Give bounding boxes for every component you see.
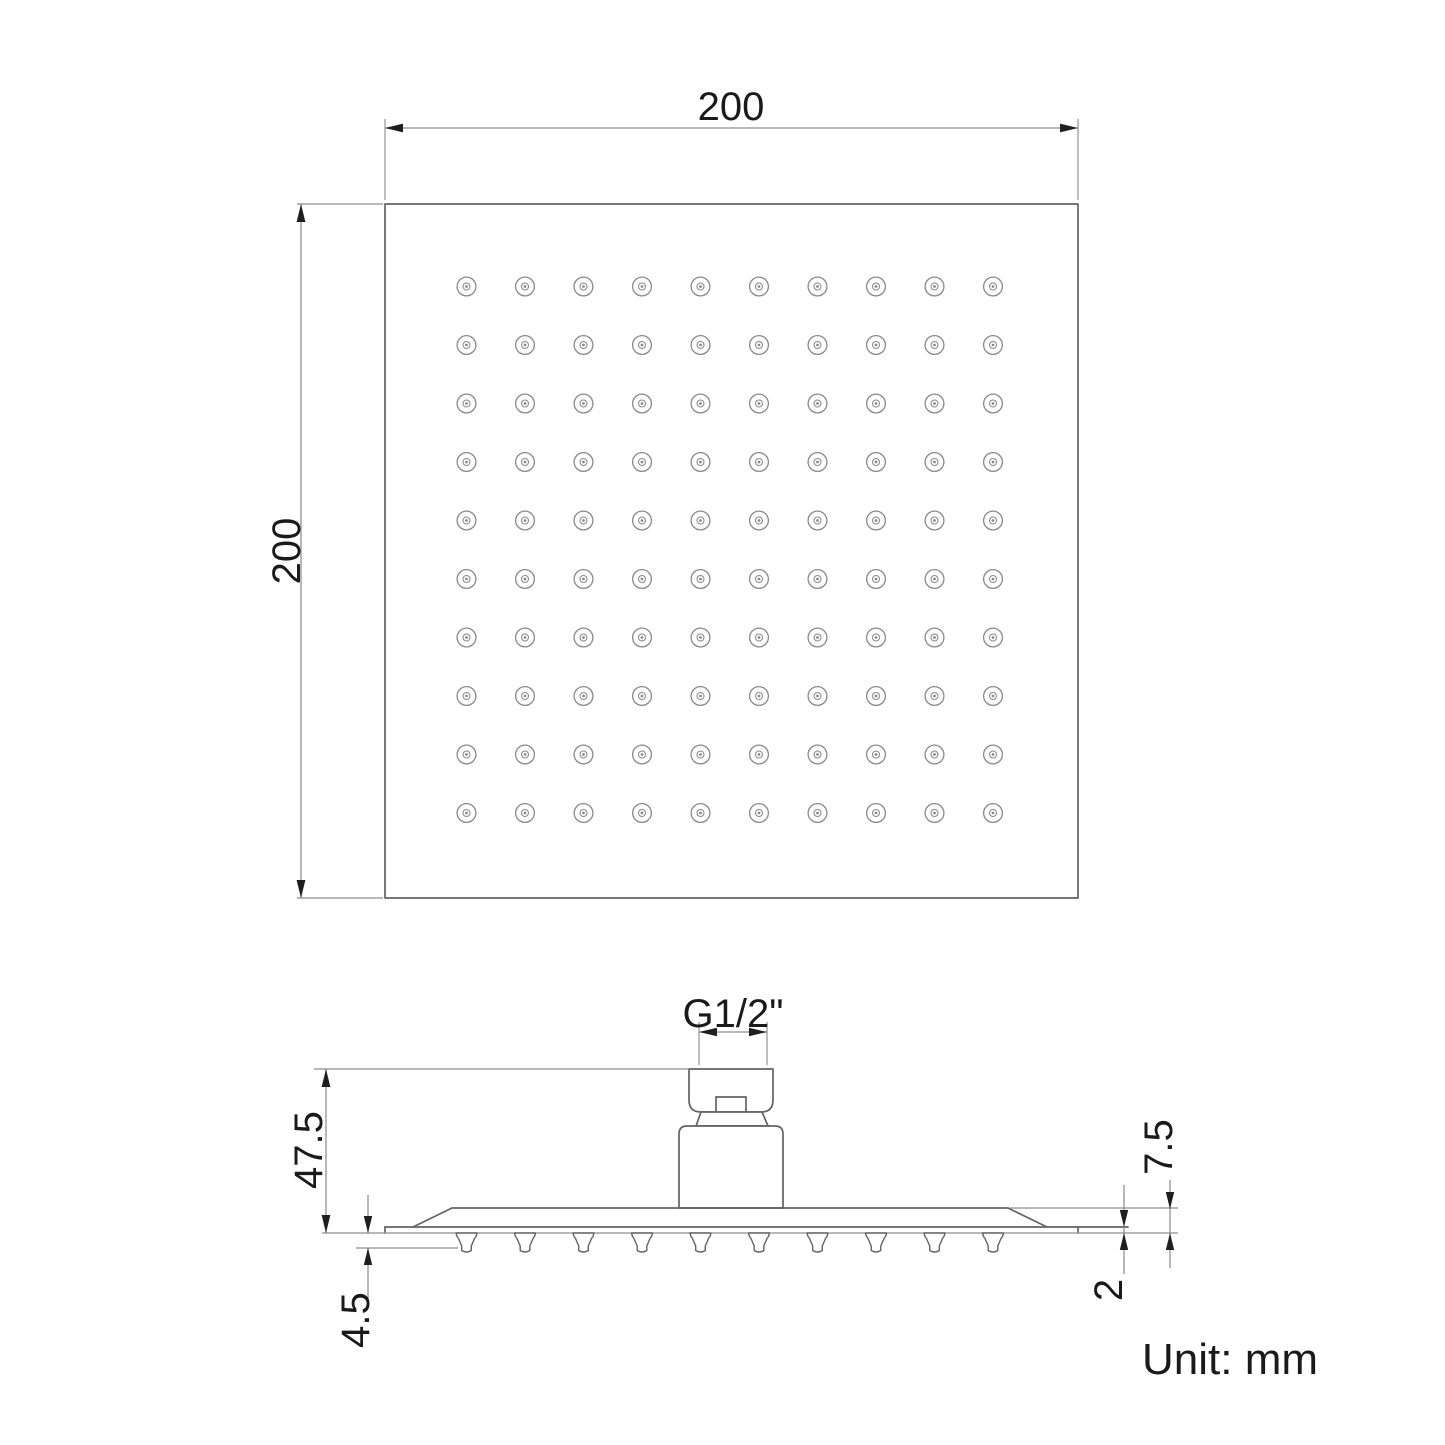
unit-note: Unit: mm xyxy=(1142,1335,1318,1384)
side-nozzles xyxy=(456,1233,1004,1252)
arrowhead-down-icon xyxy=(364,1216,372,1233)
nozzle-center-dot xyxy=(816,461,819,464)
side-nozzle xyxy=(632,1233,653,1252)
nozzle-center-dot xyxy=(641,519,644,522)
nozzle-center-dot xyxy=(758,578,761,581)
nozzle-center-dot xyxy=(465,695,468,698)
nozzle-center-dot xyxy=(465,344,468,347)
arrowhead-down-icon xyxy=(1120,1210,1128,1227)
nozzle-center-dot xyxy=(933,519,936,522)
side-nozzle xyxy=(749,1233,770,1252)
arrowhead-up-icon xyxy=(1120,1233,1128,1250)
side-nozzle xyxy=(807,1233,828,1252)
collar-outline xyxy=(696,1112,768,1126)
nozzle-center-dot xyxy=(992,578,995,581)
nozzle-center-dot xyxy=(699,695,702,698)
dimension-label-height: 200 xyxy=(265,518,309,585)
nozzle-center-dot xyxy=(524,578,527,581)
body-outline xyxy=(679,1126,783,1208)
nozzle-center-dot xyxy=(992,753,995,756)
nozzle-center-dot xyxy=(875,285,878,288)
side-view: G1/2" 47.5 4.5 7.5 xyxy=(287,992,1181,1348)
nozzle-center-dot xyxy=(641,461,644,464)
nozzle-center-dot xyxy=(758,753,761,756)
dimension-thread: G1/2" xyxy=(683,992,784,1065)
nozzle-center-dot xyxy=(875,753,878,756)
arrowhead-down-icon xyxy=(1166,1192,1174,1209)
arrowhead-up-icon xyxy=(322,1069,331,1087)
arrowhead-up-icon xyxy=(364,1248,372,1265)
nozzle-center-dot xyxy=(582,519,585,522)
nozzle-center-dot xyxy=(699,578,702,581)
nozzle-center-dot xyxy=(758,285,761,288)
technical-drawing-page: 200 200 xyxy=(0,0,1445,1445)
nozzle-center-dot xyxy=(524,695,527,698)
arrowhead-down-icon xyxy=(297,880,306,898)
side-nozzle xyxy=(866,1233,887,1252)
nozzle-center-dot xyxy=(816,812,819,815)
nozzle-center-dot xyxy=(699,519,702,522)
nozzle-center-dot xyxy=(758,402,761,405)
nozzle-center-dot xyxy=(465,402,468,405)
nozzle-center-dot xyxy=(816,695,819,698)
nozzle-center-dot xyxy=(992,636,995,639)
dimension-plate-thickness: 2 xyxy=(1087,1185,1131,1301)
arrowhead-up-icon xyxy=(297,204,306,222)
dimension-label-edge-height: 7.5 xyxy=(1137,1119,1181,1175)
nozzle-center-dot xyxy=(582,461,585,464)
nozzle-center-dot xyxy=(699,461,702,464)
nozzle-center-dot xyxy=(933,695,936,698)
nozzle-center-dot xyxy=(816,636,819,639)
nozzle-center-dot xyxy=(992,695,995,698)
dimension-label-thread: G1/2" xyxy=(683,992,784,1036)
nozzle-center-dot xyxy=(524,636,527,639)
nozzle-center-dot xyxy=(875,402,878,405)
nozzle-center-dot xyxy=(933,344,936,347)
nozzle-center-dot xyxy=(816,344,819,347)
nozzle-center-dot xyxy=(758,344,761,347)
nozzle-center-dot xyxy=(582,812,585,815)
top-view: 200 200 xyxy=(265,85,1078,898)
nozzle-center-dot xyxy=(465,753,468,756)
arrowhead-right-icon xyxy=(1060,124,1078,133)
plate-bevel-left xyxy=(413,1208,452,1227)
plate-bevel-right xyxy=(1008,1208,1047,1227)
nozzle-center-dot xyxy=(641,695,644,698)
nozzle-center-dot xyxy=(641,636,644,639)
nozzle-center-dot xyxy=(875,636,878,639)
nozzle-center-dot xyxy=(992,461,995,464)
nozzle-center-dot xyxy=(699,753,702,756)
nozzle-center-dot xyxy=(875,519,878,522)
thread-fitting-outline xyxy=(689,1069,773,1112)
dimension-label-nozzle-protrusion: 4.5 xyxy=(334,1292,378,1348)
nozzle-center-dot xyxy=(875,344,878,347)
nozzle-center-dot xyxy=(641,285,644,288)
nozzle-center-dot xyxy=(524,285,527,288)
side-nozzle xyxy=(456,1233,477,1252)
nozzle-center-dot xyxy=(816,578,819,581)
nozzle-center-dot xyxy=(992,285,995,288)
arrowhead-up-icon xyxy=(1166,1233,1174,1250)
dimension-width: 200 xyxy=(385,85,1078,200)
side-nozzle xyxy=(924,1233,945,1252)
nozzle-center-dot xyxy=(465,285,468,288)
dimension-label-overall-height: 47.5 xyxy=(287,1111,331,1189)
nozzle-center-dot xyxy=(875,695,878,698)
nozzle-center-dot xyxy=(816,753,819,756)
nozzle-center-dot xyxy=(758,812,761,815)
nozzle-center-dot xyxy=(992,402,995,405)
arrowhead-down-icon xyxy=(322,1215,331,1233)
nozzle-center-dot xyxy=(758,519,761,522)
nozzle-center-dot xyxy=(465,461,468,464)
nozzle-center-dot xyxy=(816,285,819,288)
nozzle-center-dot xyxy=(582,285,585,288)
nozzle-center-dot xyxy=(582,344,585,347)
nozzle-center-dot xyxy=(699,402,702,405)
nozzle-center-dot xyxy=(641,578,644,581)
nozzle-center-dot xyxy=(699,344,702,347)
nozzle-center-dot xyxy=(758,695,761,698)
dimension-edge-height: 7.5 xyxy=(1137,1119,1181,1268)
side-nozzle xyxy=(515,1233,536,1252)
nozzle-center-dot xyxy=(992,519,995,522)
nozzle-center-dot xyxy=(582,402,585,405)
nozzle-center-dot xyxy=(933,402,936,405)
nozzle-center-dot xyxy=(933,285,936,288)
nozzle-center-dot xyxy=(582,578,585,581)
arrowhead-left-icon xyxy=(385,124,403,133)
nozzle-center-dot xyxy=(641,402,644,405)
nozzle-center-dot xyxy=(758,636,761,639)
nozzle-center-dot xyxy=(524,402,527,405)
nozzle-center-dot xyxy=(875,461,878,464)
nozzle-center-dot xyxy=(699,285,702,288)
nozzle-center-dot xyxy=(875,812,878,815)
nozzle-center-dot xyxy=(816,402,819,405)
nozzle-center-dot xyxy=(465,812,468,815)
nozzle-center-dot xyxy=(524,461,527,464)
nozzle-center-dot xyxy=(816,519,819,522)
nozzle-center-dot xyxy=(641,812,644,815)
technical-drawing-canvas: 200 200 xyxy=(0,0,1445,1445)
nozzle-center-dot xyxy=(582,695,585,698)
nozzle-center-dot xyxy=(758,461,761,464)
dimension-label-width: 200 xyxy=(698,85,765,129)
side-nozzle xyxy=(573,1233,594,1252)
nozzle-center-dot xyxy=(524,753,527,756)
nozzle-center-dot xyxy=(524,344,527,347)
nozzle-center-dot xyxy=(933,461,936,464)
nozzle-center-dot xyxy=(699,636,702,639)
nozzle-center-dot xyxy=(875,578,878,581)
nozzle-center-dot xyxy=(992,344,995,347)
nozzle-center-dot xyxy=(699,812,702,815)
nozzle-center-dot xyxy=(992,812,995,815)
dimension-label-plate-thickness: 2 xyxy=(1087,1279,1131,1301)
nozzle-center-dot xyxy=(641,344,644,347)
nozzle-center-dot xyxy=(582,753,585,756)
nozzle-center-dot xyxy=(933,578,936,581)
nozzle-center-dot xyxy=(933,753,936,756)
nozzle-center-dot xyxy=(641,753,644,756)
dimension-height: 200 xyxy=(265,204,383,898)
shower-plate-outline xyxy=(385,204,1078,898)
dimension-nozzle-protrusion: 4.5 xyxy=(334,1195,378,1348)
nozzle-center-dot xyxy=(933,812,936,815)
nozzle-center-dot xyxy=(524,519,527,522)
side-nozzle xyxy=(690,1233,711,1252)
nozzle-center-dot xyxy=(524,812,527,815)
side-nozzle xyxy=(983,1233,1004,1252)
nozzle-center-dot xyxy=(933,636,936,639)
nozzle-center-dot xyxy=(465,636,468,639)
nozzle-center-dot xyxy=(465,578,468,581)
nozzle-center-dot xyxy=(465,519,468,522)
nozzle-center-dot xyxy=(582,636,585,639)
